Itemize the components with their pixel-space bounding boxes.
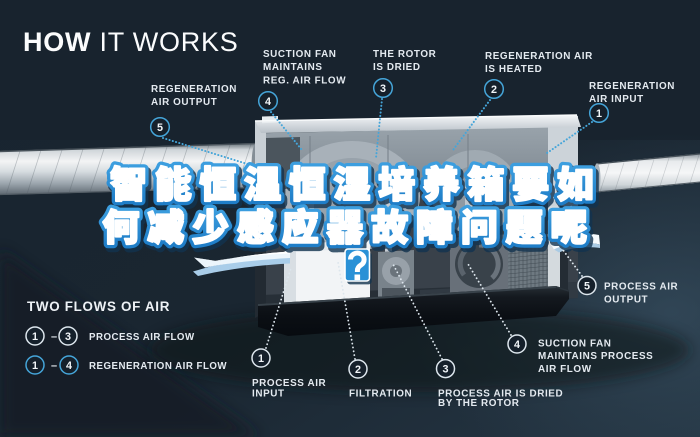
svg-text:PROCESS AIR FLOW: PROCESS AIR FLOW [89,332,195,343]
svg-text:–: – [51,360,57,372]
svg-text:1: 1 [32,360,38,372]
svg-text:3: 3 [65,331,71,343]
svg-text:5: 5 [584,280,590,292]
svg-text:1: 1 [258,353,264,365]
svg-text:1: 1 [596,108,602,120]
svg-text:5: 5 [157,122,163,134]
svg-text:1: 1 [32,331,38,343]
svg-text:4: 4 [66,360,72,372]
svg-text:HOW IT WORKS: HOW IT WORKS [23,27,239,57]
svg-text:TWO FLOWS OF AIR: TWO FLOWS OF AIR [27,299,170,314]
svg-text:4: 4 [514,339,520,351]
svg-text:3: 3 [442,364,448,376]
svg-text:3: 3 [380,83,386,95]
svg-text:–: – [51,331,57,343]
svg-text:REGENERATION AIR FLOW: REGENERATION AIR FLOW [89,361,227,372]
svg-text:2: 2 [491,84,497,96]
svg-text:4: 4 [265,96,271,108]
svg-text:2: 2 [355,364,361,376]
svg-text:FILTRATION: FILTRATION [349,389,412,400]
